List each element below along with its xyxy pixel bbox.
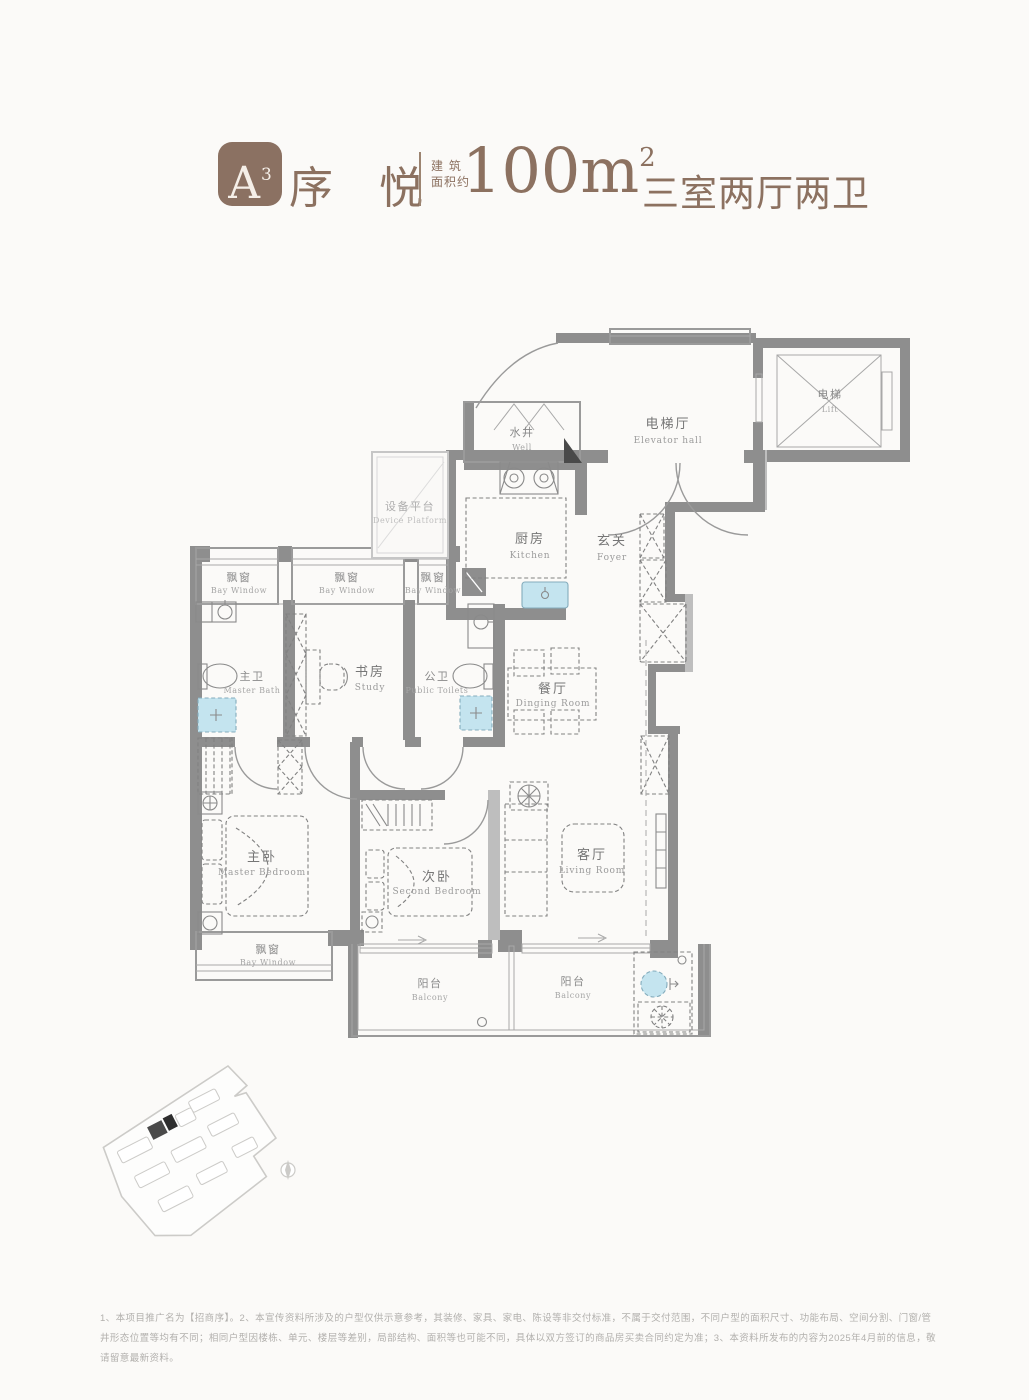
label-bay3-zh: 飘窗 (421, 570, 446, 584)
disclaimer-text: 1、本项目推广名为【招商序】。2、本宣传资料所涉及的户型仅供示意参考，其装修、家… (100, 1309, 938, 1369)
label-device-platform-zh: 设备平台 (385, 499, 435, 513)
master-bedroom-furniture (198, 738, 308, 934)
floorplan-page: A3 序 悦 建 筑 面积约 100m2 三室两厅两卫 (0, 0, 1029, 1400)
stair-door-arc (476, 343, 558, 408)
label-bay4-en: Bay Window (240, 958, 296, 967)
label-dining-en: Dinging Room (516, 699, 591, 709)
label-second-bedroom-zh: 次卧 (422, 869, 452, 885)
label-balcony2-zh: 阳台 (561, 974, 586, 988)
study-chair (320, 664, 344, 690)
badge-letter: A (228, 158, 260, 209)
master-bath-door (235, 747, 277, 789)
public-toilet-fixtures (453, 604, 494, 730)
master-bath-fixtures (196, 600, 237, 732)
label-living-room-en: Living Room (559, 866, 625, 876)
label-study-en: Study (355, 683, 386, 693)
living-room-furniture (505, 640, 666, 940)
label-bay3-en: Bay Window (405, 586, 461, 595)
label-balcony1-zh: 阳台 (418, 976, 443, 990)
label-dining-zh: 餐厅 (538, 681, 568, 697)
label-living-room-zh: 客厅 (577, 847, 607, 863)
tv-cabinet (656, 814, 666, 888)
label-elevator-hall-en: Elevator hall (634, 436, 703, 446)
label-master-bedroom-zh: 主卧 (247, 850, 277, 865)
area-value: 100m2 (462, 134, 656, 207)
master-bedroom-door (305, 747, 357, 799)
label-public-toilet-en: Public Toilets (406, 686, 469, 695)
label-bay1-en: Bay Window (211, 586, 267, 595)
washing-machine (641, 971, 667, 997)
kitchen-sink (522, 582, 568, 608)
label-bay4-zh: 飘窗 (256, 942, 281, 956)
study-door (363, 747, 405, 789)
second-bedroom-furniture (362, 800, 472, 932)
site-plan-outline (96, 1061, 298, 1253)
plan-title: 序 悦 (289, 152, 439, 216)
label-device-platform-en: Device Platform (373, 516, 447, 525)
public-toilet-door (421, 747, 463, 789)
label-master-bath-zh: 主卫 (240, 670, 265, 683)
floor-plan: 水井 Well 电梯厅 Elevator hall 电梯 Lift 设备平台 D… (185, 325, 915, 1050)
label-kitchen-en: Kitchen (510, 551, 551, 561)
label-bay1-zh: 飘窗 (227, 570, 252, 584)
study-furniture (306, 650, 347, 704)
label-foyer-en: Foyer (597, 553, 627, 563)
header-divider (419, 152, 421, 206)
master-bed (226, 816, 308, 916)
label-balcony1-en: Balcony (412, 993, 448, 1002)
label-bay2-zh: 飘窗 (335, 570, 360, 584)
entry-door-right-arc (676, 463, 748, 535)
walls-secondary (488, 450, 767, 940)
label-master-bedroom-en: Master Bedroom (218, 868, 306, 878)
label-lift-zh: 电梯 (818, 388, 843, 401)
label-study-zh: 书房 (355, 664, 385, 680)
bay-window-4 (196, 932, 332, 980)
second-bedroom-door (444, 800, 488, 844)
area-number: 100m (462, 134, 639, 207)
label-public-toilet-zh: 公卫 (425, 670, 450, 683)
label-foyer-zh: 玄关 (597, 534, 627, 549)
label-elevator-hall-zh: 电梯厅 (645, 417, 690, 432)
site-minimap (96, 1058, 306, 1253)
badge-superscript: 3 (261, 165, 272, 185)
layout-spec: 三室两厅两卫 (642, 163, 870, 217)
label-second-bedroom-en: Second Bedroom (393, 887, 482, 897)
master-bedroom-cabinet (278, 740, 302, 794)
label-kitchen-zh: 厨房 (515, 531, 545, 547)
label-bay2-en: Bay Window (319, 586, 375, 595)
lift-shaft (756, 355, 892, 447)
compass-icon (281, 1160, 295, 1180)
unit-type-badge: A3 (218, 142, 282, 206)
label-lift-en: Lift (822, 405, 839, 414)
label-well-en: Well (512, 443, 532, 452)
label-master-bath-en: Master Bath (224, 686, 281, 695)
label-balcony2-en: Balcony (555, 991, 591, 1000)
label-well-zh: 水井 (510, 425, 535, 439)
